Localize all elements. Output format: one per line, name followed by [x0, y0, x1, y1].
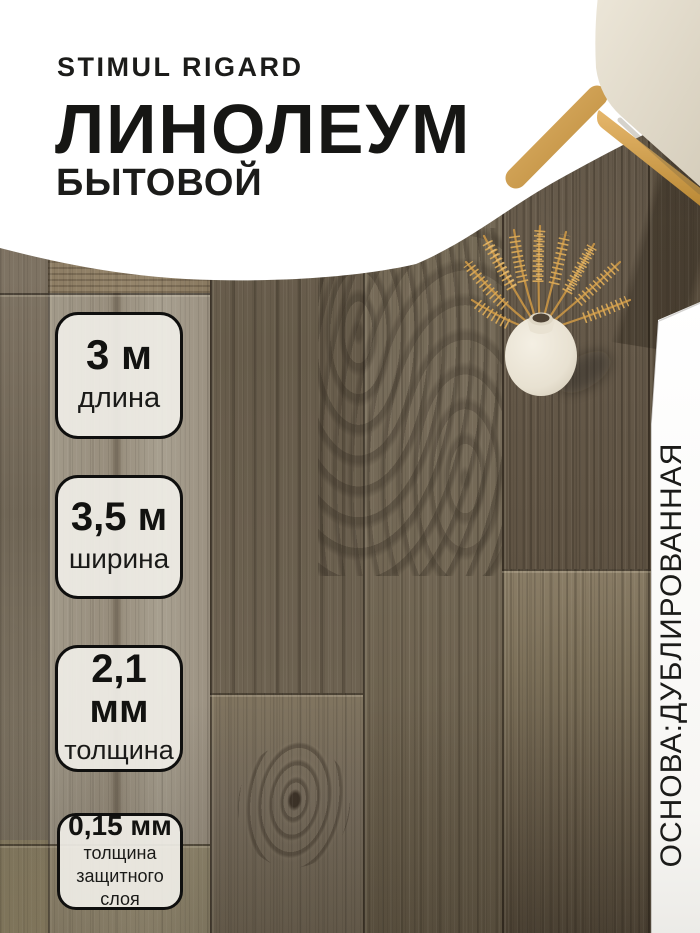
spec-label: длина: [78, 380, 160, 417]
spec-badge-thickness: 2,1 мм толщина: [55, 645, 183, 772]
spec-value: 3 м: [86, 334, 152, 376]
spec-value: 2,1 мм: [58, 649, 180, 729]
spec-label: толщина: [64, 733, 173, 768]
spec-value: 0,15 мм: [68, 812, 172, 840]
spec-value: 3,5 м: [71, 497, 167, 537]
spec-badge-length: 3 м длина: [55, 312, 183, 439]
spec-label: ширина: [69, 541, 169, 577]
spec-badge-width: 3,5 м ширина: [55, 475, 183, 599]
spec-label: толщина защитного слоя: [66, 842, 174, 911]
product-card: STIMUL RIGARD ЛИНОЛЕУМ БЫТОВОЙ 3 м длина…: [0, 0, 700, 933]
spec-badge-protective-layer: 0,15 мм толщина защитного слоя: [57, 813, 183, 910]
spec-badges: 3 м длина 3,5 м ширина 2,1 мм толщина 0,…: [0, 0, 700, 933]
